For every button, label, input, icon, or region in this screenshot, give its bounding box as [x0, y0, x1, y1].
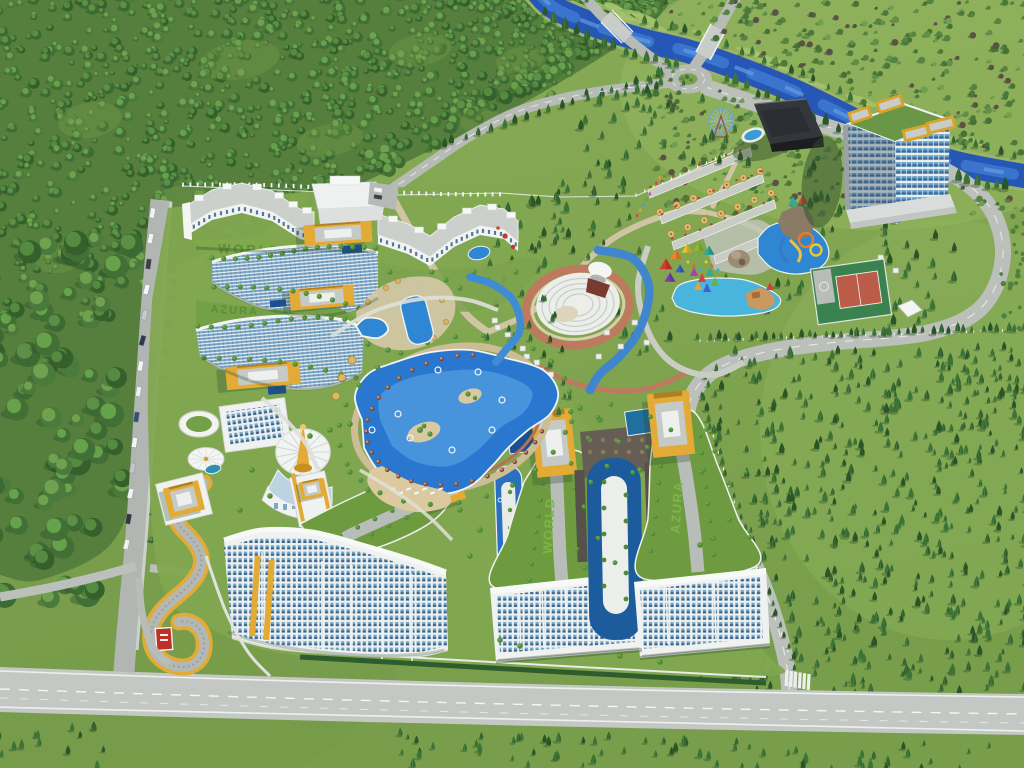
svg-text:WORLD: WORLD: [540, 497, 558, 554]
svg-text:AZURA: AZURA: [210, 304, 259, 319]
